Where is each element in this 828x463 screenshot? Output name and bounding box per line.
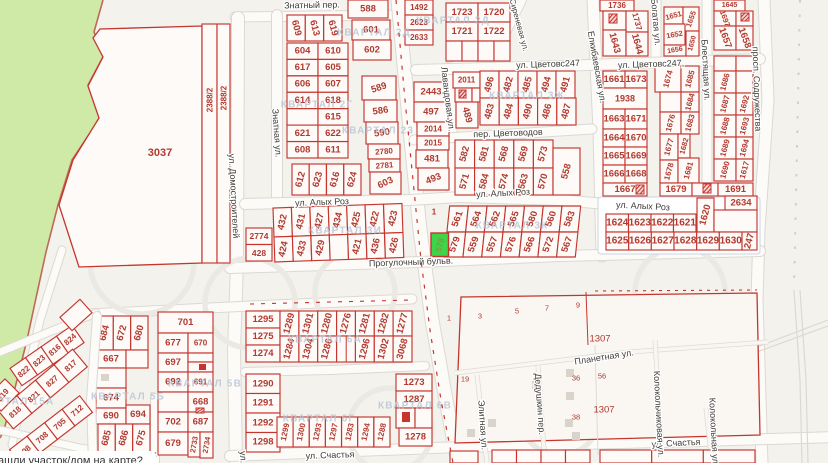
svg-text:1664: 1664	[603, 133, 625, 144]
svg-text:1626: 1626	[629, 236, 652, 247]
svg-text:1274: 1274	[252, 348, 274, 359]
svg-text:1290: 1290	[252, 378, 273, 389]
svg-text:3: 3	[478, 312, 482, 321]
svg-text:605: 605	[325, 62, 342, 73]
svg-text:1621: 1621	[674, 218, 697, 229]
svg-text:687: 687	[193, 417, 209, 428]
svg-text:1666: 1666	[603, 169, 624, 180]
svg-text:КВАРТАЛ 23: КВАРТАЛ 23	[342, 126, 414, 137]
svg-text:610: 610	[325, 46, 341, 57]
svg-text:1629: 1629	[697, 236, 720, 247]
svg-text:2388/2: 2388/2	[206, 87, 215, 112]
svg-text:617: 617	[295, 62, 311, 73]
svg-text:1295: 1295	[252, 314, 274, 325]
svg-text:1627: 1627	[652, 236, 675, 247]
svg-text:586: 586	[372, 104, 389, 117]
svg-text:ул. Алых Роз: ул. Алых Роз	[295, 196, 349, 208]
svg-text:701: 701	[178, 317, 195, 328]
svg-text:1278: 1278	[405, 432, 426, 443]
svg-text:497: 497	[423, 107, 439, 118]
svg-text:2780: 2780	[375, 146, 394, 157]
svg-text:2014: 2014	[424, 125, 442, 134]
svg-text:607: 607	[325, 79, 341, 90]
svg-text:606: 606	[295, 79, 311, 90]
svg-text:КВАРТАЛ 2Г: КВАРТАЛ 2Г	[281, 100, 353, 111]
svg-text:604: 604	[295, 46, 312, 57]
svg-text:1645: 1645	[722, 2, 738, 9]
svg-text:КВАРТАЛ 5В: КВАРТАЛ 5В	[168, 379, 242, 390]
svg-text:3037: 3037	[148, 147, 172, 159]
svg-text:КВАРТАЛ 6Г: КВАРТАЛ 6Г	[283, 414, 355, 425]
svg-text:2011: 2011	[458, 76, 476, 85]
svg-text:1721: 1721	[451, 26, 473, 37]
svg-text:1668: 1668	[625, 169, 646, 180]
svg-text:56: 56	[598, 372, 606, 381]
svg-text:702: 702	[165, 417, 181, 428]
svg-text:690: 690	[103, 411, 119, 422]
svg-text:1665: 1665	[603, 151, 625, 162]
svg-text:1273: 1273	[403, 377, 424, 388]
svg-text:КВАРТАЛ 6А: КВАРТАЛ 6А	[288, 335, 362, 346]
svg-text:1663: 1663	[603, 114, 624, 125]
svg-text:1492: 1492	[410, 3, 428, 12]
svg-text:1938: 1938	[615, 94, 635, 104]
svg-text:7: 7	[545, 304, 549, 313]
svg-text:ул. Счастья: ул. Счастья	[305, 449, 354, 461]
svg-text:694: 694	[130, 409, 147, 420]
svg-text:2633: 2633	[410, 33, 428, 42]
svg-text:668: 668	[193, 397, 209, 408]
svg-text:КВАРТАЛ 15А: КВАРТАЛ 15А	[0, 397, 54, 408]
svg-text:697: 697	[165, 357, 181, 368]
svg-text:1630: 1630	[720, 236, 743, 247]
svg-text:КВАРТАЛ 2Д: КВАРТАЛ 2Д	[416, 16, 490, 27]
svg-text:1679: 1679	[665, 184, 686, 195]
svg-text:670: 670	[194, 339, 208, 348]
svg-text:1736: 1736	[608, 1, 626, 10]
svg-text:5: 5	[515, 307, 519, 316]
svg-text:1722: 1722	[483, 26, 504, 37]
svg-text:608: 608	[295, 144, 311, 155]
svg-text:КВАРТАЛ 3К: КВАРТАЛ 3К	[476, 221, 549, 232]
svg-text:1298: 1298	[252, 437, 273, 448]
svg-text:1275: 1275	[252, 331, 274, 342]
svg-text:602: 602	[364, 45, 380, 56]
svg-text:1307: 1307	[589, 334, 610, 345]
svg-text:622: 622	[325, 128, 341, 139]
svg-text:1624: 1624	[606, 218, 629, 229]
svg-text:1691: 1691	[725, 184, 747, 195]
svg-text:2774: 2774	[250, 231, 269, 241]
svg-text:611: 611	[325, 144, 341, 155]
svg-text:481: 481	[424, 154, 441, 165]
svg-text:1667: 1667	[614, 184, 635, 195]
svg-text:КВАРТАЛ 5Б: КВАРТАЛ 5Б	[91, 392, 165, 403]
svg-text:КВАРТАЛ 6В: КВАРТАЛ 6В	[378, 401, 452, 412]
svg-text:КВАРТАЛ 2Д: КВАРТАЛ 2Д	[337, 28, 411, 39]
svg-text:1623: 1623	[629, 218, 652, 229]
svg-text:38: 38	[572, 413, 580, 422]
svg-text:1628: 1628	[674, 236, 697, 247]
svg-text:1625: 1625	[606, 236, 629, 247]
svg-text:2388/2: 2388/2	[220, 85, 229, 110]
svg-text:9: 9	[576, 301, 580, 310]
svg-text:2443: 2443	[420, 87, 441, 98]
svg-text:679: 679	[165, 438, 181, 449]
svg-text:615: 615	[325, 111, 342, 122]
svg-text:1292: 1292	[252, 417, 273, 428]
svg-text:677: 677	[165, 338, 181, 349]
svg-text:667: 667	[103, 354, 119, 365]
svg-text:2781: 2781	[375, 160, 394, 171]
svg-text:КВАРТАЛ 3Ж: КВАРТАЛ 3Ж	[489, 91, 565, 102]
svg-text:36: 36	[572, 374, 580, 383]
svg-text:19: 19	[461, 375, 469, 384]
svg-text:1661: 1661	[603, 74, 625, 85]
svg-text:1669: 1669	[625, 151, 646, 162]
svg-text:2015: 2015	[424, 139, 442, 148]
svg-text:1671: 1671	[625, 114, 647, 125]
svg-text:588: 588	[360, 4, 376, 15]
svg-text:Знатный пер.: Знатный пер.	[284, 0, 340, 10]
svg-text:621: 621	[295, 128, 312, 139]
svg-text:1291: 1291	[252, 398, 274, 409]
svg-text:1307: 1307	[593, 405, 614, 416]
svg-text:1670: 1670	[625, 133, 646, 144]
svg-text:2634: 2634	[730, 198, 752, 209]
svg-text:1622: 1622	[651, 218, 674, 229]
svg-text:1: 1	[447, 314, 451, 323]
svg-text:КВАРТАЛ 3И: КВАРТАЛ 3И	[308, 226, 382, 237]
svg-text:ашли участок/дом на карте?: ашли участок/дом на карте?	[0, 455, 143, 463]
svg-text:1673: 1673	[625, 74, 646, 85]
svg-text:428: 428	[252, 248, 266, 258]
svg-text:1: 1	[432, 208, 437, 217]
